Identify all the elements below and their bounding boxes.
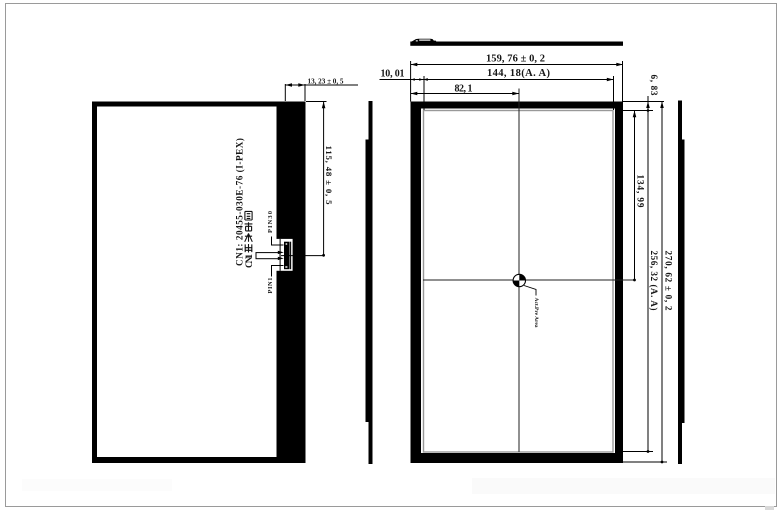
svg-text:256, 32 (A. A): 256, 32 (A. A) (649, 251, 659, 311)
svg-text:CN1: CN1 (244, 254, 254, 268)
svg-text:159, 76 ± 0, 2: 159, 76 ± 0, 2 (486, 54, 545, 65)
svg-text:82, 1: 82, 1 (455, 84, 473, 95)
svg-text:144, 18(A. A): 144, 18(A. A) (487, 68, 551, 79)
svg-text:13, 23 ± 0, 5: 13, 23 ± 0, 5 (308, 78, 344, 86)
svg-text:CN1: 20455-030E-76 (I-PEX): CN1: 20455-030E-76 (I-PEX) (235, 138, 245, 266)
svg-text:6, 83: 6, 83 (649, 75, 659, 96)
svg-text:PIN30: PIN30 (267, 211, 274, 233)
svg-text:270, 62 ± 0, 2: 270, 62 ± 0, 2 (664, 251, 674, 311)
svg-text:Act.Pre Area: Act.Pre Area (533, 298, 539, 328)
svg-text:10, 01: 10, 01 (381, 69, 405, 80)
svg-text:PIN1: PIN1 (267, 278, 274, 294)
svg-text:115, 48 ± 0, 5: 115, 48 ± 0, 5 (324, 146, 334, 206)
svg-text:134, 99: 134, 99 (636, 175, 646, 208)
